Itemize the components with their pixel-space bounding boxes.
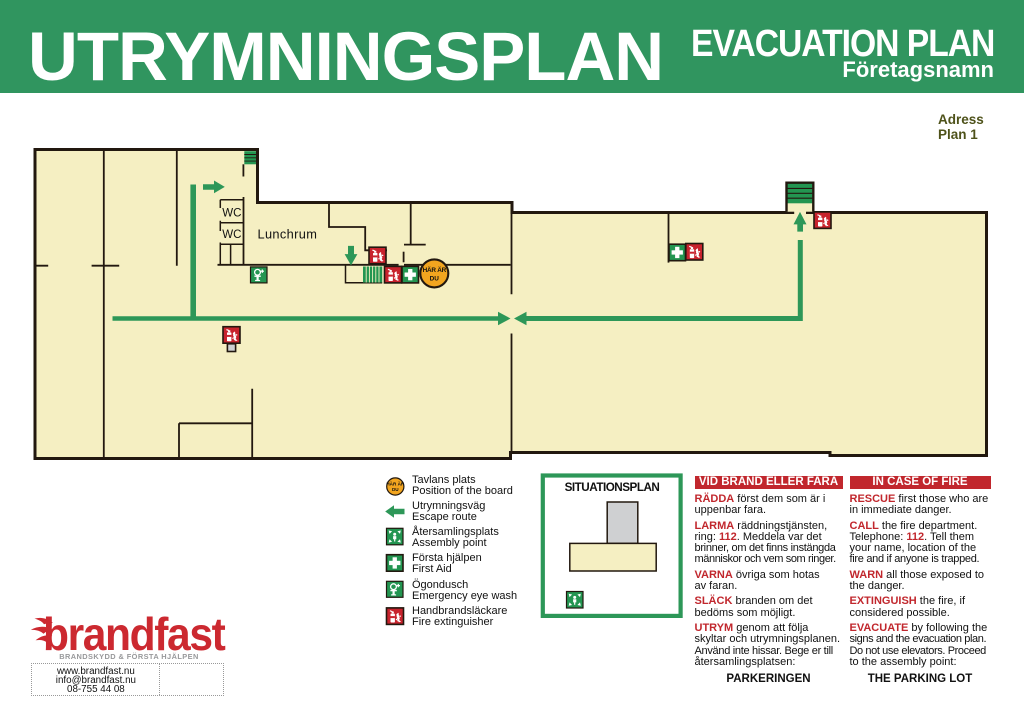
svg-text:HÄR ÄR: HÄR ÄR [386,481,405,487]
svg-text:WC: WC [222,207,241,219]
svg-text:Lunchrum: Lunchrum [258,227,318,242]
svg-text:DU: DU [430,276,440,283]
svg-text:DU: DU [392,487,399,492]
svg-text:WC: WC [222,229,241,241]
svg-text:HÄR ÄR: HÄR ÄR [423,266,447,274]
